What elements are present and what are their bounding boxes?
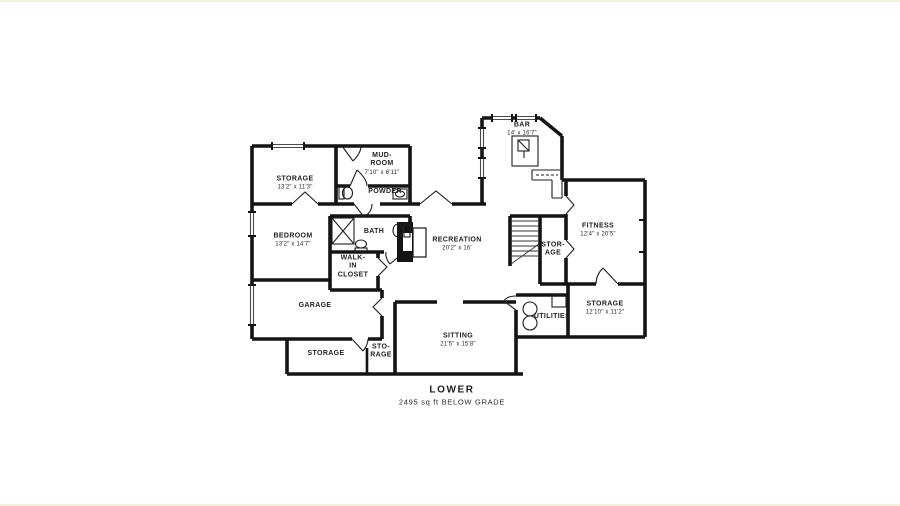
room-name: SITTING <box>440 332 476 340</box>
room-dims: 20'2" x 16' <box>432 246 481 252</box>
plan-subtitle: 2495 sq ft BELOW GRADE <box>399 398 505 407</box>
room-label-storage-se: STORAGE 12'10" x 11'2" <box>586 300 625 315</box>
room-name: STORAGE <box>277 175 314 183</box>
room-dims: 21'5" x 15'8" <box>440 342 476 348</box>
double-door-bedroom-hall <box>292 192 318 204</box>
room-name: BEDROOM <box>273 232 312 240</box>
room-name: MUD- ROOM <box>364 152 399 169</box>
room-label-fitness: FITNESS 12'4" x 20'5" <box>580 222 616 237</box>
room-label-recreation: RECREATION 20'2" x 16' <box>432 236 481 251</box>
room-label-storage-sw: STORAGE <box>308 350 345 358</box>
mudroom-entry-door <box>342 146 361 161</box>
room-name: WALK- IN CLOSET <box>338 254 369 279</box>
fitness-door-lower <box>566 240 574 258</box>
fitness-door-upper <box>566 196 574 214</box>
fireplace-icon <box>397 222 426 262</box>
room-name: POWDER <box>368 188 402 196</box>
garage-door <box>373 298 382 316</box>
room-name: STORAGE <box>308 350 345 358</box>
room-name: RECREATION <box>432 236 481 244</box>
room-name: FITNESS <box>580 222 616 230</box>
closet-door <box>378 258 387 276</box>
room-name: GARAGE <box>299 302 332 310</box>
room-dims: 13'2" x 11'3" <box>277 185 314 191</box>
room-name: STO- RAGE <box>370 344 392 361</box>
room-label-utilities: UTILITIES <box>534 313 570 321</box>
double-door-recreation <box>420 191 452 204</box>
room-name: BATH <box>364 228 384 236</box>
bar-counter-icon <box>532 170 562 198</box>
staircase <box>511 221 539 264</box>
floorplan-drawing <box>0 0 900 506</box>
room-label-bar: BAR 14' x 16'7" <box>507 121 537 136</box>
room-label-garage: GARAGE <box>299 302 332 310</box>
room-label-stor-age: STOR- AGE <box>541 242 564 259</box>
room-name: UTILITIES <box>534 313 570 321</box>
room-label-sitting: SITTING 21'5" x 15'8" <box>440 332 476 347</box>
room-dims: 13'2" x 14'7" <box>273 242 312 248</box>
room-label-storage-small: STO- RAGE <box>370 344 392 361</box>
room-label-walk-in-closet: WALK- IN CLOSET <box>338 254 369 279</box>
plan-title: LOWER <box>429 385 474 396</box>
room-label-storage-nw: STORAGE 13'2" x 11'3" <box>277 175 314 190</box>
room-label-mud-room: MUD- ROOM 7'10" x 6'11" <box>364 152 399 176</box>
room-dims: 7'10" x 6'11" <box>364 170 399 176</box>
room-label-bath: BATH <box>364 228 384 236</box>
floor-plan: STORAGE 13'2" x 11'3" MUD- ROOM 7'10" x … <box>0 0 900 506</box>
bath-sink-icon <box>356 240 367 248</box>
storage-small-door <box>352 339 368 351</box>
room-name: BAR <box>507 121 537 129</box>
room-name: STORAGE <box>586 300 625 308</box>
bar-fixtures <box>512 136 562 198</box>
room-label-powder: POWDER <box>368 188 402 196</box>
storage-se-door <box>596 268 618 284</box>
room-label-bedroom: BEDROOM 13'2" x 14'7" <box>273 232 312 247</box>
room-dims: 12'10" x 11'2" <box>586 310 625 316</box>
room-dims: 14' x 16'7" <box>507 131 537 137</box>
room-name: STOR- AGE <box>541 242 564 259</box>
room-dims: 12'4" x 20'5" <box>580 232 616 238</box>
